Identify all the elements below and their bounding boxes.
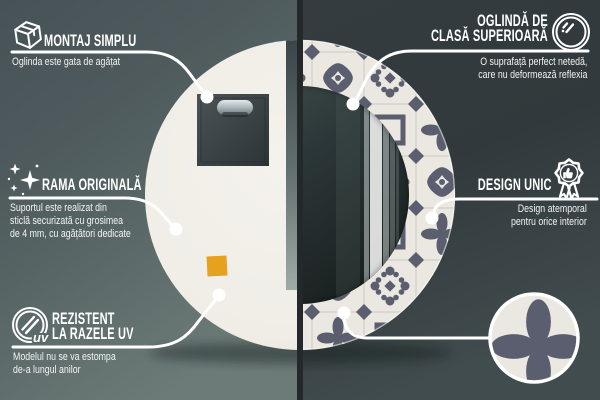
mirror-edge-sliver [286,38,298,290]
callout-desc-line: Oglinda este gata de agățat [12,56,120,69]
callout-desc-uv: Modelul nu se va estompa de-a lungul ani… [13,351,141,377]
callout-desc-montaj-simplu: Oglinda este gata de agățat [12,56,147,69]
callout-desc-line: de 4 mm, cu agățători dedicate [10,228,131,241]
callout-title-uv: REZISTENT LA RAZELE UV [52,311,178,341]
callout-desc-rama: Suportul este realizat din sticlă securi… [10,202,161,241]
award-badge-icon [549,157,589,203]
callout-desc-line: pentru orice interior [511,216,587,229]
callout-desc-line: sticlă securizată cu grosimea [10,215,131,228]
sparkles-icon [6,160,42,198]
callout-title-text: DESIGN UNIC [478,177,552,192]
product-infographic: MONTAJ SIMPLU Oglinda este gata de agăța… [0,0,600,400]
uv-icon-label: uv [33,330,49,345]
callout-desc-line: Suportul este realizat din [10,202,131,215]
callout-title-text: LA RAZELE UV [52,326,134,341]
callout-title-text: RAMA ORIGINALĂ [42,177,142,192]
callout-title-design: DESIGN UNIC [438,177,552,192]
callout-title-text: CLASĂ SUPERIOARĂ [431,28,548,43]
callout-title-rama: RAMA ORIGINALĂ [42,177,195,192]
uv-protection-icon: uv [10,305,52,347]
callout-desc-line: care nu deformează reflexia [478,69,587,82]
pattern-magnifier-circle [490,294,578,382]
callout-desc-line: Modelul nu se va estompa [13,351,116,364]
adhesive-pad [206,255,227,276]
photo-divider-line [297,0,303,400]
mirror-shine-icon [550,11,592,53]
callout-desc-oglinda: O suprafață perfect netedă, care nu defo… [451,56,587,82]
callout-title-text: MONTAJ SIMPLU [44,33,136,48]
callout-title-oglinda: OGLINDĂ DE CLASĂ SUPERIOARĂ [368,13,548,43]
detail-anchor-dot [338,307,351,320]
callout-desc-design: Design atemporal pentru orice interior [492,203,587,229]
callout-title-montaj-simplu: MONTAJ SIMPLU [44,33,186,48]
callout-desc-line: O suprafață perfect netedă, [478,56,587,69]
package-box-icon [9,15,47,53]
callout-desc-line: Design atemporal [511,203,587,216]
callout-desc-line: de-a lungul anilor [13,364,116,377]
